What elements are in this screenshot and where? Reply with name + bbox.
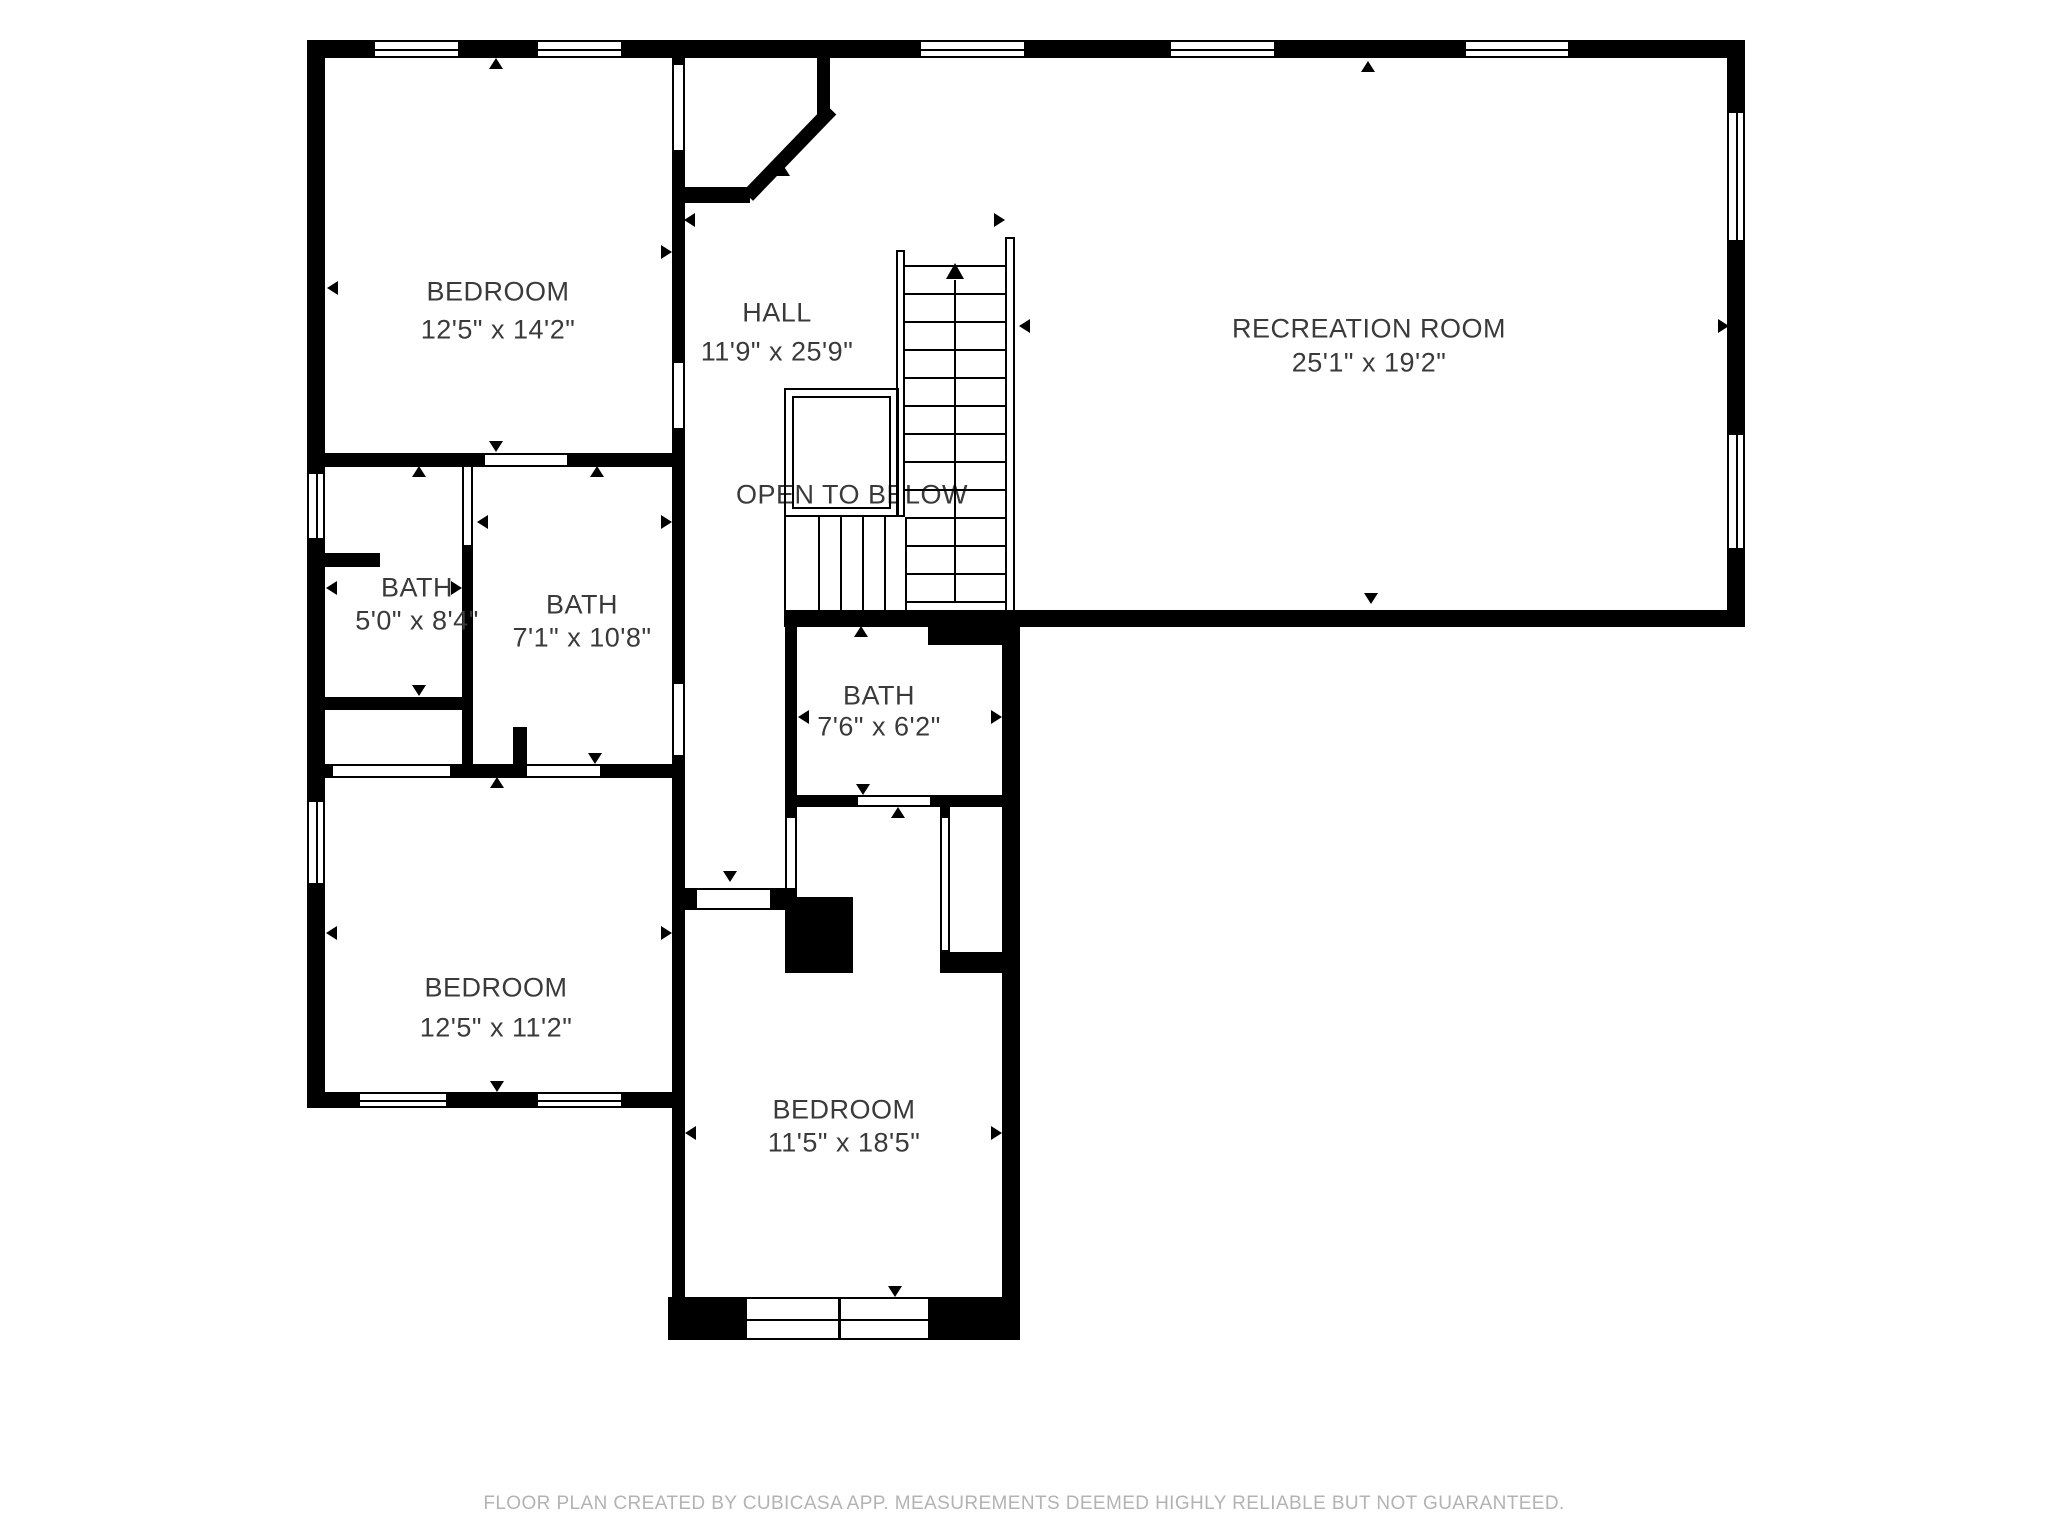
wall-marker-up-icon xyxy=(412,466,426,477)
window xyxy=(919,40,1026,58)
room-dimensions: 12'5" x 14'2" xyxy=(421,315,576,346)
room-label: RECREATION ROOM xyxy=(1232,314,1506,345)
wall xyxy=(784,610,1745,627)
window-midline xyxy=(316,802,318,883)
stair-railing xyxy=(1005,237,1015,612)
door-opening xyxy=(333,764,450,778)
stair-winder-tread xyxy=(884,517,886,610)
wall-marker-right-icon xyxy=(994,213,1005,227)
stair-edge xyxy=(905,517,907,610)
wall-marker-up-icon xyxy=(489,58,503,69)
door-opening xyxy=(940,818,950,950)
window-midline xyxy=(1171,49,1274,51)
door-opening xyxy=(785,818,797,888)
wall-marker-left-icon xyxy=(684,213,695,227)
room-label: BATH xyxy=(546,590,618,621)
window xyxy=(1464,40,1570,58)
wall xyxy=(462,545,473,778)
wall-marker-down-icon xyxy=(1364,593,1378,604)
footer-disclaimer: FLOOR PLAN CREATED BY CUBICASA APP. MEAS… xyxy=(483,1493,1564,1515)
wall-marker-right-icon xyxy=(1718,319,1729,333)
window xyxy=(307,800,325,885)
wall-marker-right-icon xyxy=(661,245,672,259)
room-label: BEDROOM xyxy=(772,1095,915,1126)
wall xyxy=(1002,610,1020,1297)
room-label: BEDROOM xyxy=(424,973,567,1004)
door-opening xyxy=(527,764,600,778)
stair-winder-tread xyxy=(818,517,820,610)
room-dimensions: 25'1" x 19'2" xyxy=(1292,348,1447,379)
window-midline xyxy=(1736,113,1738,240)
stair-edge xyxy=(784,517,786,610)
room-label: HALL xyxy=(742,298,812,329)
wall-marker-up-icon xyxy=(891,807,905,818)
window-mullion xyxy=(838,1299,841,1338)
stair-center-line xyxy=(954,280,956,601)
door-opening xyxy=(672,65,685,150)
room-label: BATH xyxy=(843,681,915,712)
wall-marker-right-icon xyxy=(991,710,1002,724)
window-midline xyxy=(538,49,621,51)
wall-marker-left-icon xyxy=(1019,319,1030,333)
wall-marker-down-icon xyxy=(588,753,602,764)
up-arrow-icon xyxy=(946,263,964,279)
window-midline xyxy=(375,49,458,51)
wall-marker-left-icon xyxy=(798,710,809,724)
open-to-below-railing xyxy=(792,396,891,509)
window xyxy=(536,40,623,58)
window xyxy=(1727,111,1745,242)
wall-marker-left-icon xyxy=(326,926,337,940)
wall-marker-right-icon xyxy=(991,1126,1002,1140)
wall-marker-down-icon xyxy=(490,1081,504,1092)
wall-marker-down-icon xyxy=(489,441,503,452)
wall xyxy=(318,553,380,567)
wall xyxy=(785,897,853,973)
wall xyxy=(928,627,1007,645)
window xyxy=(307,472,325,540)
door-opening xyxy=(462,467,473,545)
wall-marker-down-icon xyxy=(888,1286,902,1297)
room-dimensions: 5'0" x 8'4" xyxy=(355,606,479,637)
window-midline xyxy=(1736,435,1738,548)
room-dimensions: 11'5" x 18'5" xyxy=(768,1128,921,1159)
room-dimensions: 12'5" x 11'2" xyxy=(420,1013,573,1044)
window-midline xyxy=(538,1100,621,1102)
window xyxy=(745,1297,930,1340)
door-opening xyxy=(672,684,685,755)
stair-tread xyxy=(905,601,1005,603)
window xyxy=(358,1092,448,1108)
stair-winder-tread xyxy=(840,517,842,610)
window-midline xyxy=(360,1100,446,1102)
wall-marker-left-icon xyxy=(477,515,488,529)
door-opening xyxy=(697,888,770,910)
wall xyxy=(307,697,463,710)
wall xyxy=(672,58,685,1297)
wall xyxy=(685,187,750,203)
room-dimensions: 7'6" x 6'2" xyxy=(817,712,941,743)
wall xyxy=(940,952,1002,973)
window xyxy=(536,1092,623,1108)
wall-marker-down-icon xyxy=(856,784,870,795)
door-opening xyxy=(485,453,567,467)
room-dimensions: 7'1" x 10'8" xyxy=(512,623,651,654)
wall-marker-up-icon xyxy=(776,165,790,176)
window xyxy=(1727,433,1745,550)
wall-marker-up-icon xyxy=(854,626,868,637)
wall xyxy=(513,727,527,778)
wall xyxy=(307,40,325,1108)
room-dimensions: 11'9" x 25'9" xyxy=(701,337,854,368)
wall-marker-up-icon xyxy=(490,777,504,788)
wall-marker-down-icon xyxy=(412,685,426,696)
window-midline xyxy=(316,474,318,538)
floor-plan-canvas: OPEN TO BELOW FLOOR PLAN CREATED BY CUBI… xyxy=(0,0,2048,1536)
window xyxy=(1169,40,1276,58)
wall-diagonal xyxy=(743,105,836,201)
wall-marker-left-icon xyxy=(326,581,337,595)
wall-marker-up-icon xyxy=(590,466,604,477)
wall-marker-left-icon xyxy=(685,1126,696,1140)
door-opening xyxy=(858,795,930,807)
wall-marker-up-icon xyxy=(1361,61,1375,72)
wall-marker-right-icon xyxy=(661,515,672,529)
window xyxy=(373,40,460,58)
door-opening xyxy=(672,363,685,428)
wall-marker-left-icon xyxy=(327,281,338,295)
window-midline xyxy=(1466,49,1568,51)
room-label: BEDROOM xyxy=(426,277,569,308)
window-midline xyxy=(921,49,1024,51)
wall-marker-down-icon xyxy=(723,871,737,882)
stair-winder-tread xyxy=(862,517,864,610)
wall-marker-right-icon xyxy=(661,926,672,940)
room-label: BATH xyxy=(381,573,453,604)
